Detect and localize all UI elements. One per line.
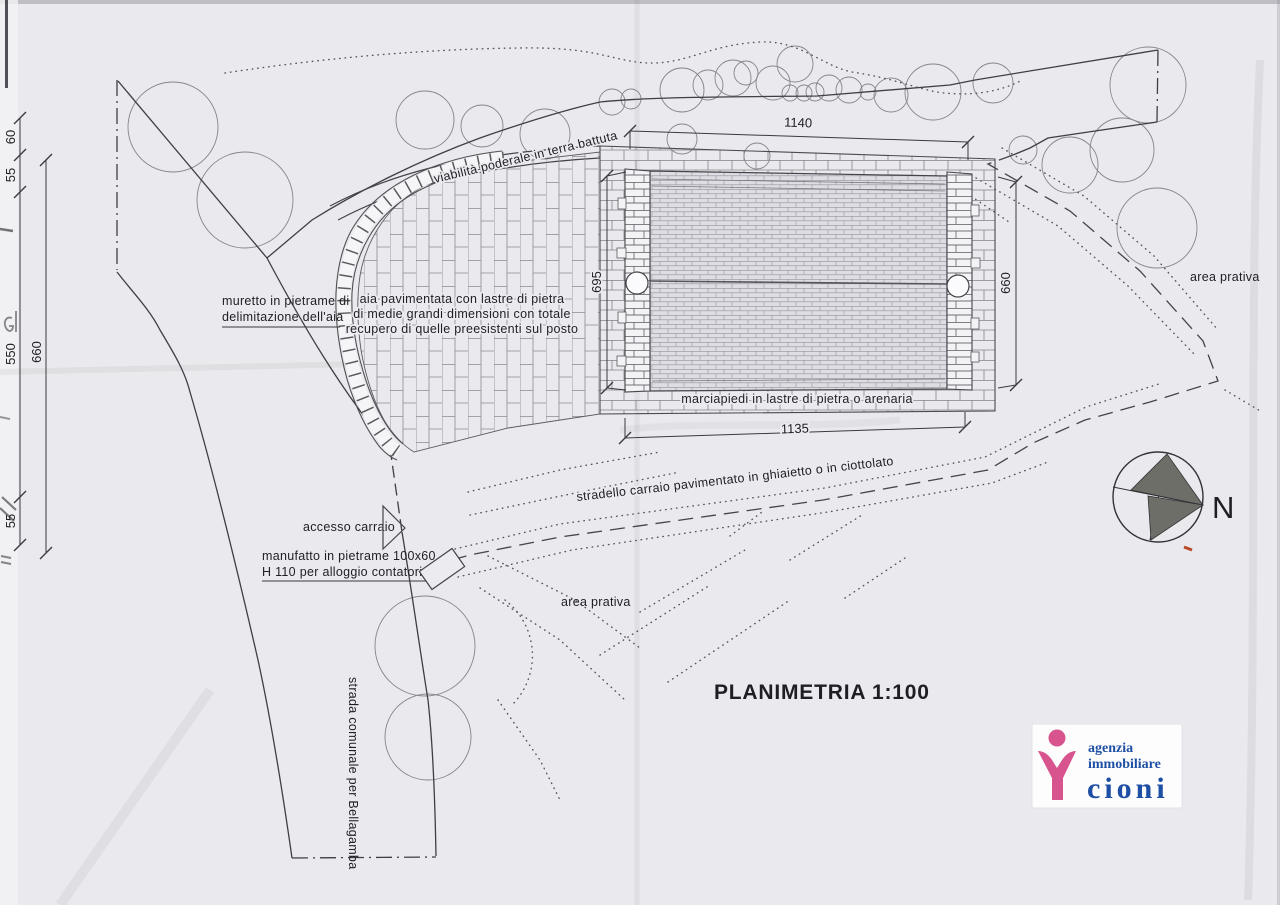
north-label: N: [1212, 490, 1234, 525]
label-strada-comunale: strada comunale per Bellagamba: [346, 677, 360, 869]
wall-circle-east: [947, 275, 969, 297]
dim-left-height: 695: [589, 271, 604, 293]
label-manufatto-line2: H 110 per alloggio contatori: [262, 565, 422, 579]
label-aia-line1: aia pavimentata con lastre di pietra: [360, 292, 565, 306]
label-muretto-line2: delimitazione dell'aia: [222, 310, 344, 324]
plan-scale: 1:100: [872, 681, 930, 704]
dim-west-60: 60: [3, 130, 18, 144]
title-block: PLANIMETRIA 1:100: [714, 681, 930, 704]
scan-top-edge-shadow: [0, 0, 1280, 4]
dim-top-width: 1140: [784, 115, 812, 131]
dim-west-550: 550: [3, 343, 18, 365]
label-aia-line3: recupero di quelle preesistenti sul post…: [346, 322, 579, 336]
dim-bottom-width: 1135: [781, 421, 809, 437]
label-manufatto-line1: manufatto in pietrame 100x60: [262, 549, 436, 563]
plan-title: PLANIMETRIA: [714, 681, 866, 704]
scanned-site-plan-page: 1140 1135 695 660 60 55 550 55 660 viabi…: [0, 0, 1280, 905]
dim-west-55b: 55: [3, 514, 18, 528]
logo-text-line1: agenzia: [1088, 741, 1133, 756]
edge-artifact-bar: [5, 0, 8, 88]
label-aia-line2: di medie grandi dimensioni con totale: [353, 307, 570, 321]
label-area-prativa-east: area prativa: [1190, 270, 1260, 284]
dim-west-55a: 55: [3, 168, 18, 182]
label-accesso: accesso carraio: [303, 520, 395, 534]
dim-right-height: 660: [998, 272, 1013, 294]
dim-west-660: 660: [29, 341, 44, 363]
wall-circle-west: [626, 272, 648, 294]
site-plan-svg: 1140 1135 695 660 60 55 550 55 660 viabi…: [0, 0, 1280, 905]
agency-logo: agenzia immobiliare cioni: [1032, 724, 1182, 808]
label-marciapiedi: marciapiedi in lastre di pietra o arenar…: [681, 392, 912, 406]
building-block: [617, 169, 980, 392]
logo-text-line2: immobiliare: [1088, 757, 1161, 772]
label-muretto-line1: muretto in pietrame di: [222, 294, 350, 308]
logo-text-line3: cioni: [1087, 772, 1169, 805]
label-area-prativa-south: area prativa: [561, 595, 631, 609]
